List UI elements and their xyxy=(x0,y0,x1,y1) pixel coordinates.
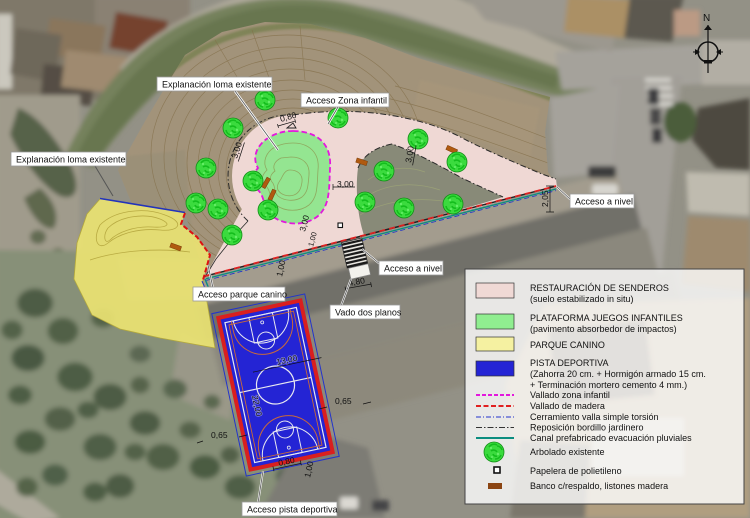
svg-text:PLATAFORMA JUEGOS INFANTILES: PLATAFORMA JUEGOS INFANTILES xyxy=(530,313,683,323)
svg-text:Reposición bordillo jardinero: Reposición bordillo jardinero xyxy=(530,423,644,433)
svg-text:Explanación loma existente: Explanación loma existente xyxy=(162,80,272,90)
svg-text:0,65: 0,65 xyxy=(335,396,352,406)
svg-text:Vado dos planos: Vado dos planos xyxy=(335,308,402,318)
svg-text:Vallado zona infantil: Vallado zona infantil xyxy=(530,390,610,400)
svg-text:(pavimento absorbedor de impac: (pavimento absorbedor de impactos) xyxy=(530,324,677,334)
svg-text:Acceso pista deportiva: Acceso pista deportiva xyxy=(247,505,338,515)
svg-text:Banco c/respaldo, listones mad: Banco c/respaldo, listones madera xyxy=(530,481,668,491)
svg-text:Acceso a nivel: Acceso a nivel xyxy=(575,197,633,207)
svg-text:Explanación loma existente: Explanación loma existente xyxy=(16,155,126,165)
svg-text:(Zahorra 20 cm. + Hormigón arm: (Zahorra 20 cm. + Hormigón armado 15 cm. xyxy=(530,369,706,379)
svg-text:Acceso Zona infantil: Acceso Zona infantil xyxy=(306,96,387,106)
svg-text:Papelera de polietileno: Papelera de polietileno xyxy=(530,466,622,476)
svg-text:Acceso parque canino: Acceso parque canino xyxy=(198,290,287,300)
svg-text:PISTA DEPORTIVA: PISTA DEPORTIVA xyxy=(530,358,609,368)
svg-text:Acceso a nivel: Acceso a nivel xyxy=(384,264,442,274)
svg-text:Vallado de madera: Vallado de madera xyxy=(530,401,605,411)
svg-text:Cerramiento valla simple torsi: Cerramiento valla simple torsión xyxy=(530,412,659,422)
svg-text:3,00: 3,00 xyxy=(337,179,354,189)
svg-text:0,65: 0,65 xyxy=(211,430,228,440)
svg-text:N: N xyxy=(703,13,710,24)
svg-text:(suelo estabilizado in situ): (suelo estabilizado in situ) xyxy=(530,294,634,304)
svg-text:+ Terminación mortero cemento: + Terminación mortero cemento 4 mm.) xyxy=(530,380,687,390)
svg-text:Arbolado existente: Arbolado existente xyxy=(530,447,605,457)
svg-text:2,05: 2,05 xyxy=(540,190,550,207)
svg-text:PARQUE CANINO: PARQUE CANINO xyxy=(530,340,605,350)
svg-text:Canal prefabricado evacuación: Canal prefabricado evacuación pluviales xyxy=(530,433,692,443)
svg-text:RESTAURACIÓN DE SENDEROS: RESTAURACIÓN DE SENDEROS xyxy=(530,283,669,293)
